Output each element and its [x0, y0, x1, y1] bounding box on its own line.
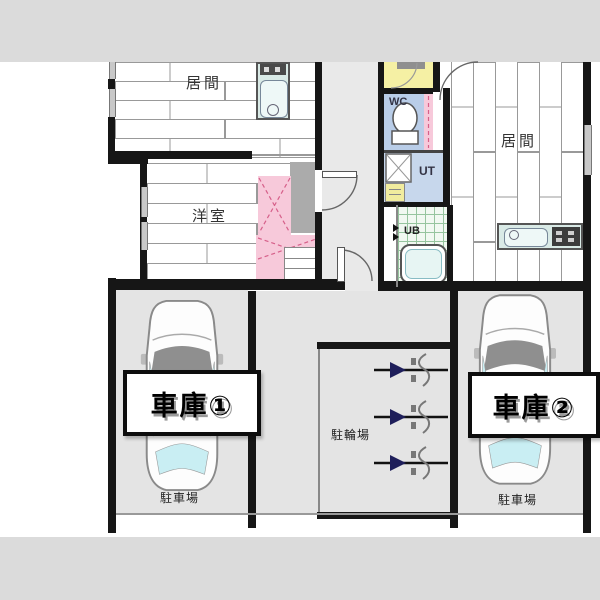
- garage2-label-box: 車庫②: [468, 372, 600, 438]
- wall: [108, 278, 116, 533]
- window: [109, 62, 116, 79]
- wall: [108, 79, 115, 89]
- bicycle-icon: [374, 447, 448, 479]
- closet-pink-lower: [256, 235, 322, 281]
- wall: [378, 281, 591, 291]
- wall-line: [318, 349, 320, 512]
- bicycle-park-label: 駐輪場: [331, 426, 370, 443]
- wall: [317, 342, 458, 349]
- wall: [384, 88, 433, 94]
- floorplan-screenshot: 居間 洋室 居間 WC UT UB 車庫① 車庫② 駐車場 駐車場 駐輪場: [0, 0, 600, 600]
- wall: [140, 162, 147, 280]
- washbasin-icon: [385, 183, 405, 202]
- closet-dash-marks: [258, 176, 291, 235]
- wall-line: [396, 205, 398, 287]
- bicycle-icons: [374, 352, 450, 482]
- kitchen-left: [256, 62, 290, 120]
- kitchen-right: [497, 223, 583, 250]
- wall: [112, 151, 252, 159]
- wall: [433, 62, 440, 92]
- shoe-cabinet: [397, 62, 425, 69]
- faucet-icon: [267, 104, 279, 116]
- garage1-label-box: 車庫①: [123, 370, 261, 436]
- wall: [315, 62, 322, 170]
- door-leaf: [337, 247, 345, 282]
- plot-front-line: [116, 513, 583, 515]
- faucet-icon: [509, 230, 519, 240]
- wall: [108, 279, 345, 290]
- window: [109, 89, 116, 117]
- wall: [384, 202, 450, 207]
- stove-icon: [260, 64, 286, 75]
- window: [141, 187, 148, 217]
- closet-pink-upper: [258, 176, 291, 235]
- door-leaf: [322, 171, 357, 178]
- garage2-label: 車庫②: [493, 386, 576, 425]
- stove-icon: [552, 227, 580, 246]
- living-room-left-label: 居間: [186, 72, 222, 93]
- car-park-right-label: 駐車場: [498, 491, 537, 508]
- closet-gray: [290, 162, 315, 233]
- ut-label: UT: [419, 164, 435, 178]
- living-room-right-label: 居間: [501, 130, 537, 151]
- wall: [315, 212, 322, 283]
- car-park-left-label: 駐車場: [160, 489, 199, 506]
- window: [141, 222, 148, 250]
- wc-label: WC: [389, 96, 407, 108]
- wall: [378, 62, 384, 291]
- wall: [450, 283, 458, 528]
- bicycle-icon: [374, 354, 448, 386]
- wall-opening-line: [252, 154, 315, 156]
- bicycle-icon: [374, 401, 448, 433]
- window: [584, 125, 592, 175]
- wall: [447, 205, 453, 287]
- closet-shelf: [284, 247, 316, 281]
- washing-machine-icon: [385, 153, 412, 183]
- bottom-gray-strip: [0, 537, 600, 600]
- wall: [384, 150, 444, 153]
- bathtub-icon: [400, 244, 447, 284]
- entrance-area: [384, 62, 433, 89]
- garage1-label: 車庫①: [151, 384, 234, 423]
- top-gray-strip: [0, 0, 600, 62]
- ub-label: UB: [404, 225, 420, 237]
- wc-door-pink: [424, 94, 433, 150]
- western-room-label: 洋室: [192, 205, 228, 226]
- wall: [443, 88, 450, 205]
